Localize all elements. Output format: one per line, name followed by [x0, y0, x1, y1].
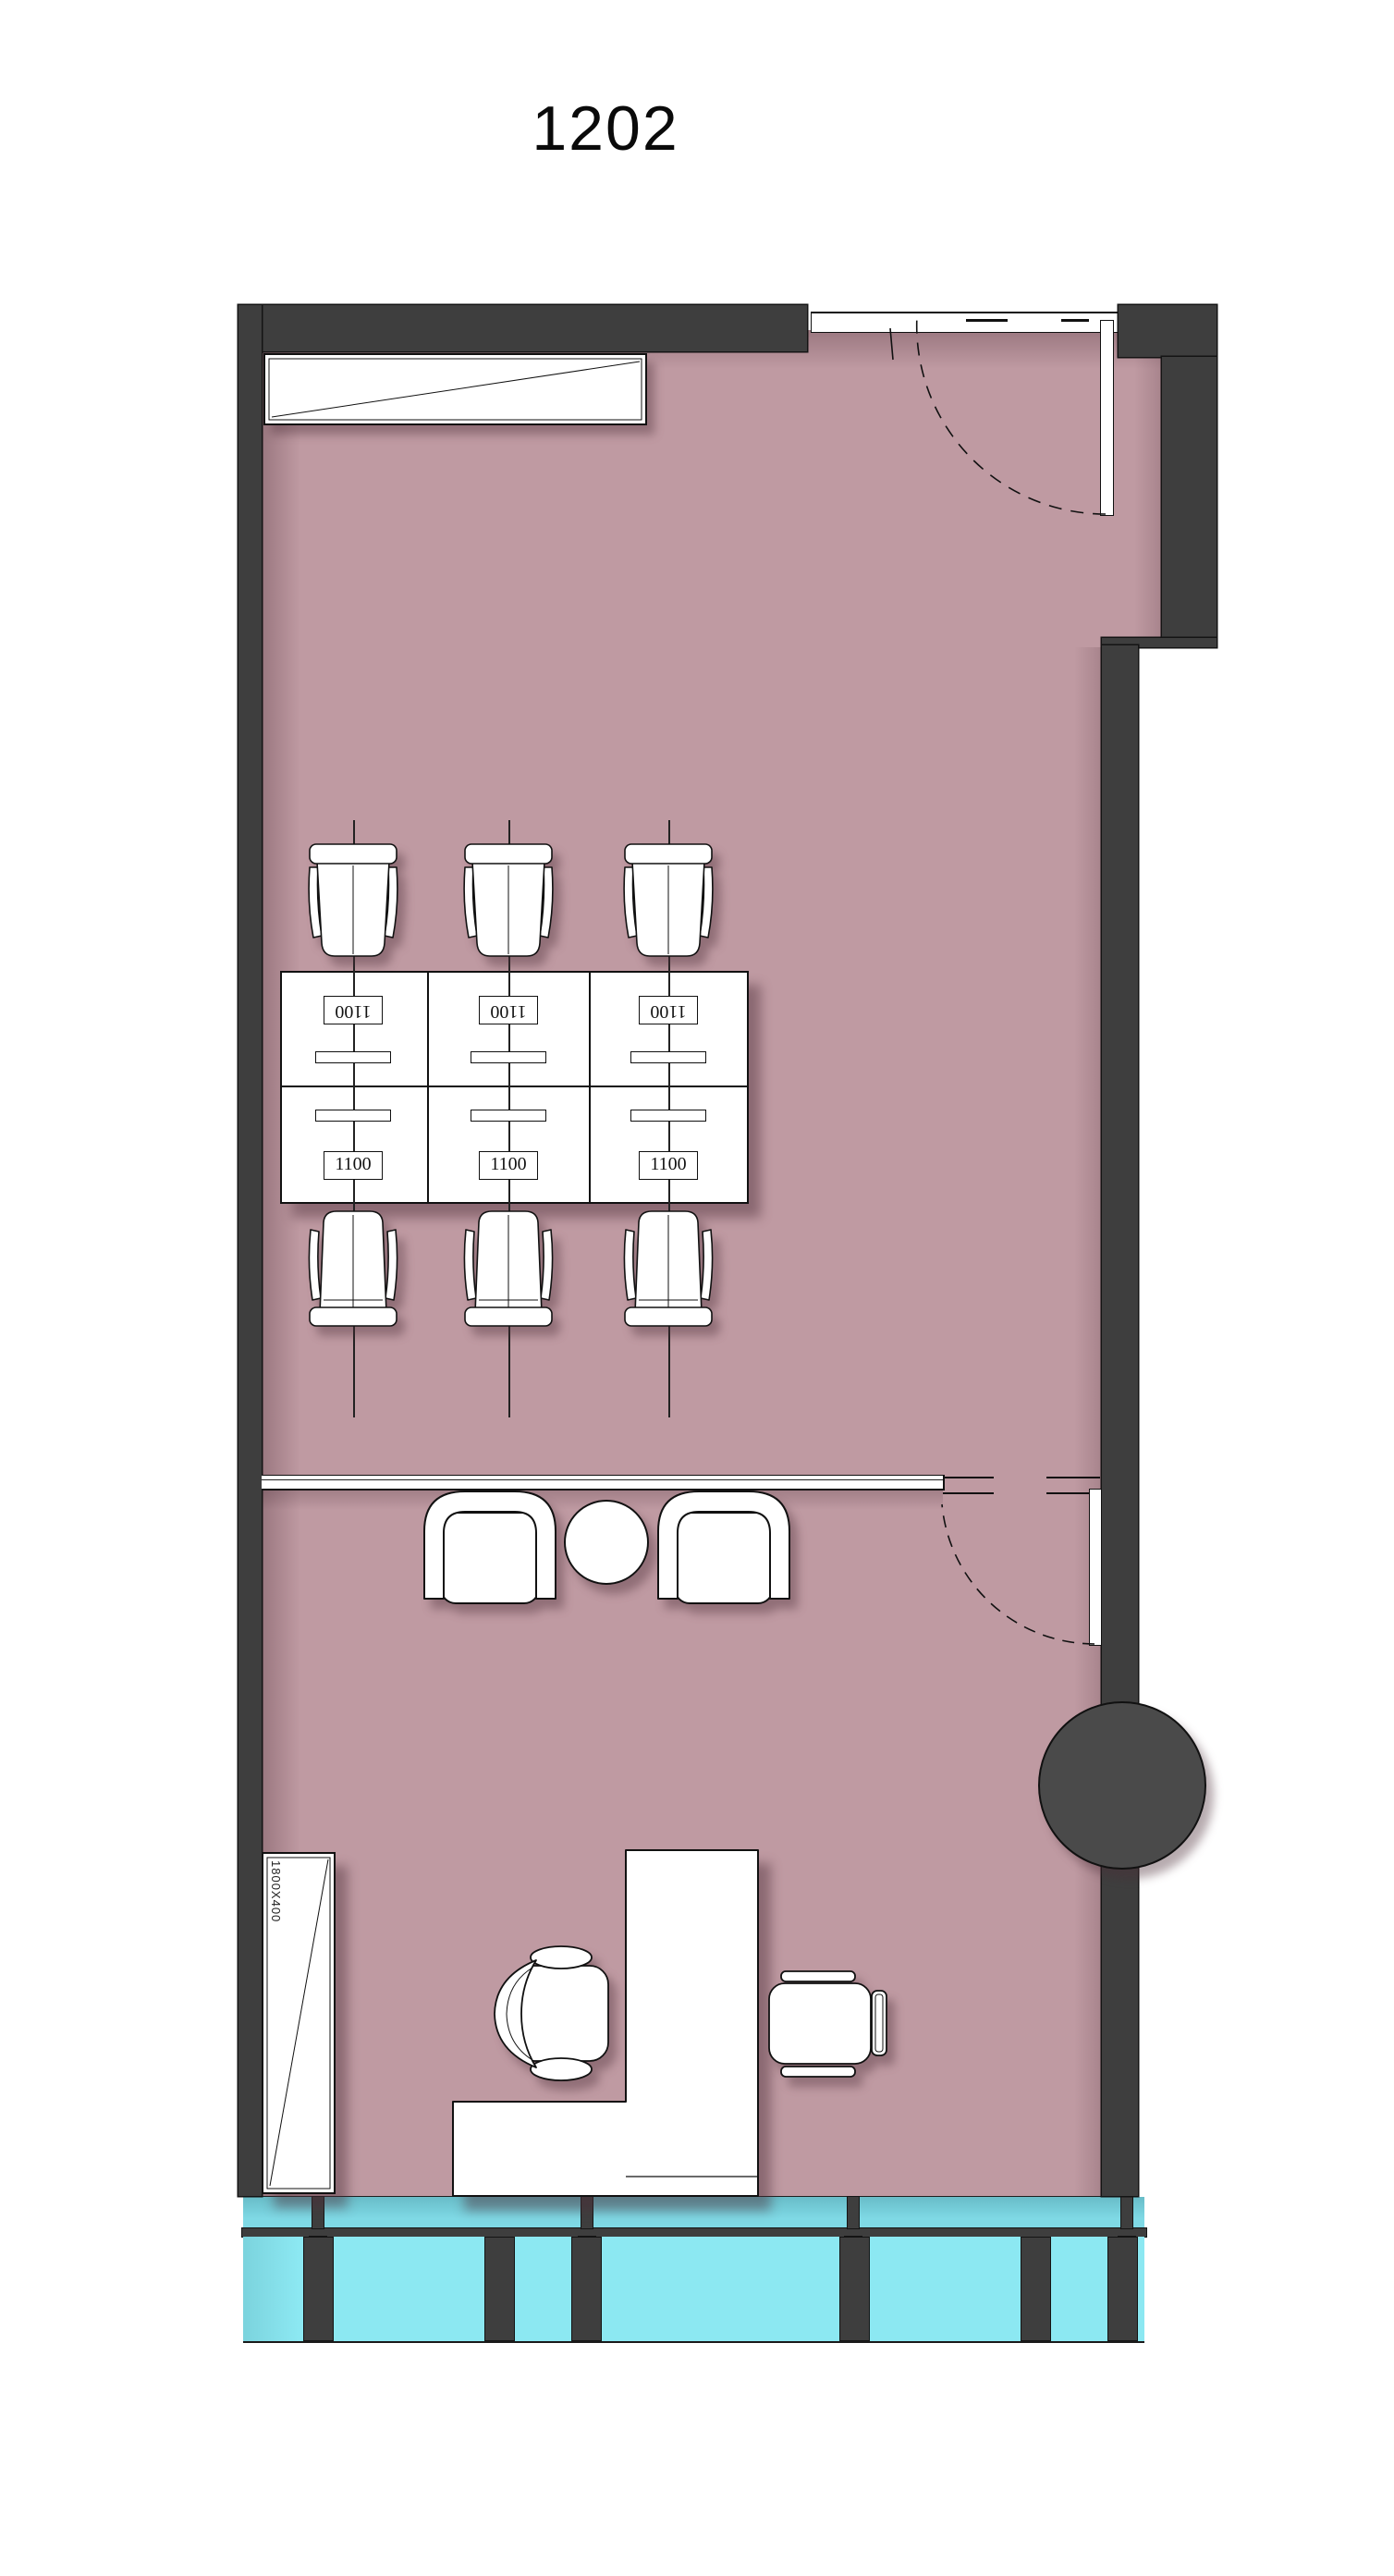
keyboard-tray — [315, 1110, 391, 1122]
wall-cabinet — [263, 353, 647, 425]
structural-column — [1038, 1701, 1206, 1870]
window-mullion — [312, 2197, 324, 2228]
balcony-post — [572, 2238, 601, 2340]
keyboard-tray — [315, 1051, 391, 1063]
cabinet-size-label: 1800X400 — [269, 1860, 283, 1922]
executive-chair — [481, 1942, 610, 2085]
keyboard-tray — [471, 1110, 546, 1122]
partition-glazing-line — [262, 1479, 943, 1480]
balcony-glazing-band — [243, 2237, 1144, 2343]
window-sill-strip — [243, 2197, 1144, 2228]
partition-wall-segment — [943, 1477, 994, 1494]
lounge-chair — [422, 1489, 557, 1605]
desk-divider-vertical — [427, 973, 429, 1202]
inner-door-leaf — [1089, 1489, 1102, 1646]
desk-size-label: 1100 — [324, 1151, 383, 1180]
floor-plan-canvas: 1202 1100 1100 1100 1100 1100 1100 — [0, 0, 1394, 2576]
task-chair — [622, 843, 715, 963]
window-mullion — [581, 2197, 593, 2228]
desk-size-label: 1100 — [479, 996, 538, 1024]
exterior-wall-right-upper — [1162, 357, 1217, 645]
task-chair — [462, 843, 555, 963]
room-number-title: 1202 — [374, 92, 837, 165]
wall-corner-block — [1119, 305, 1217, 357]
opening-dash — [966, 319, 1008, 322]
task-chair — [305, 1209, 401, 1327]
lounge-chair — [656, 1489, 791, 1605]
glass-partition — [262, 1475, 945, 1490]
guest-chair — [767, 1968, 889, 2080]
window-mullion — [1121, 2197, 1132, 2228]
keyboard-tray — [471, 1051, 546, 1063]
task-chair — [460, 1209, 556, 1327]
keyboard-tray — [630, 1110, 706, 1122]
coffee-table — [563, 1499, 650, 1586]
desk-divider-vertical — [589, 973, 591, 1202]
balcony-post — [304, 2238, 333, 2340]
task-chair — [307, 843, 399, 963]
desk-divider-horizontal — [282, 1086, 747, 1087]
exterior-wall-left — [238, 305, 262, 2196]
desk-size-label: 1100 — [639, 1151, 698, 1180]
exterior-wall-right-lower — [1102, 645, 1138, 2196]
exterior-wall-top — [238, 305, 807, 351]
entry-door-leaf — [1100, 320, 1114, 516]
desk-size-label: 1100 — [479, 1151, 538, 1180]
keyboard-tray — [630, 1051, 706, 1063]
task-chair — [620, 1209, 716, 1327]
desk-size-label: 1100 — [324, 996, 383, 1024]
balcony-post — [840, 2238, 869, 2340]
balcony-post — [1021, 2238, 1050, 2340]
opening-dash — [1061, 319, 1089, 322]
balcony-post — [1108, 2238, 1137, 2340]
entry-opening — [811, 312, 1119, 333]
window-frame-rail — [242, 2228, 1146, 2237]
window-mullion — [848, 2197, 859, 2228]
balcony-post — [485, 2238, 514, 2340]
desk-size-label: 1100 — [639, 996, 698, 1024]
